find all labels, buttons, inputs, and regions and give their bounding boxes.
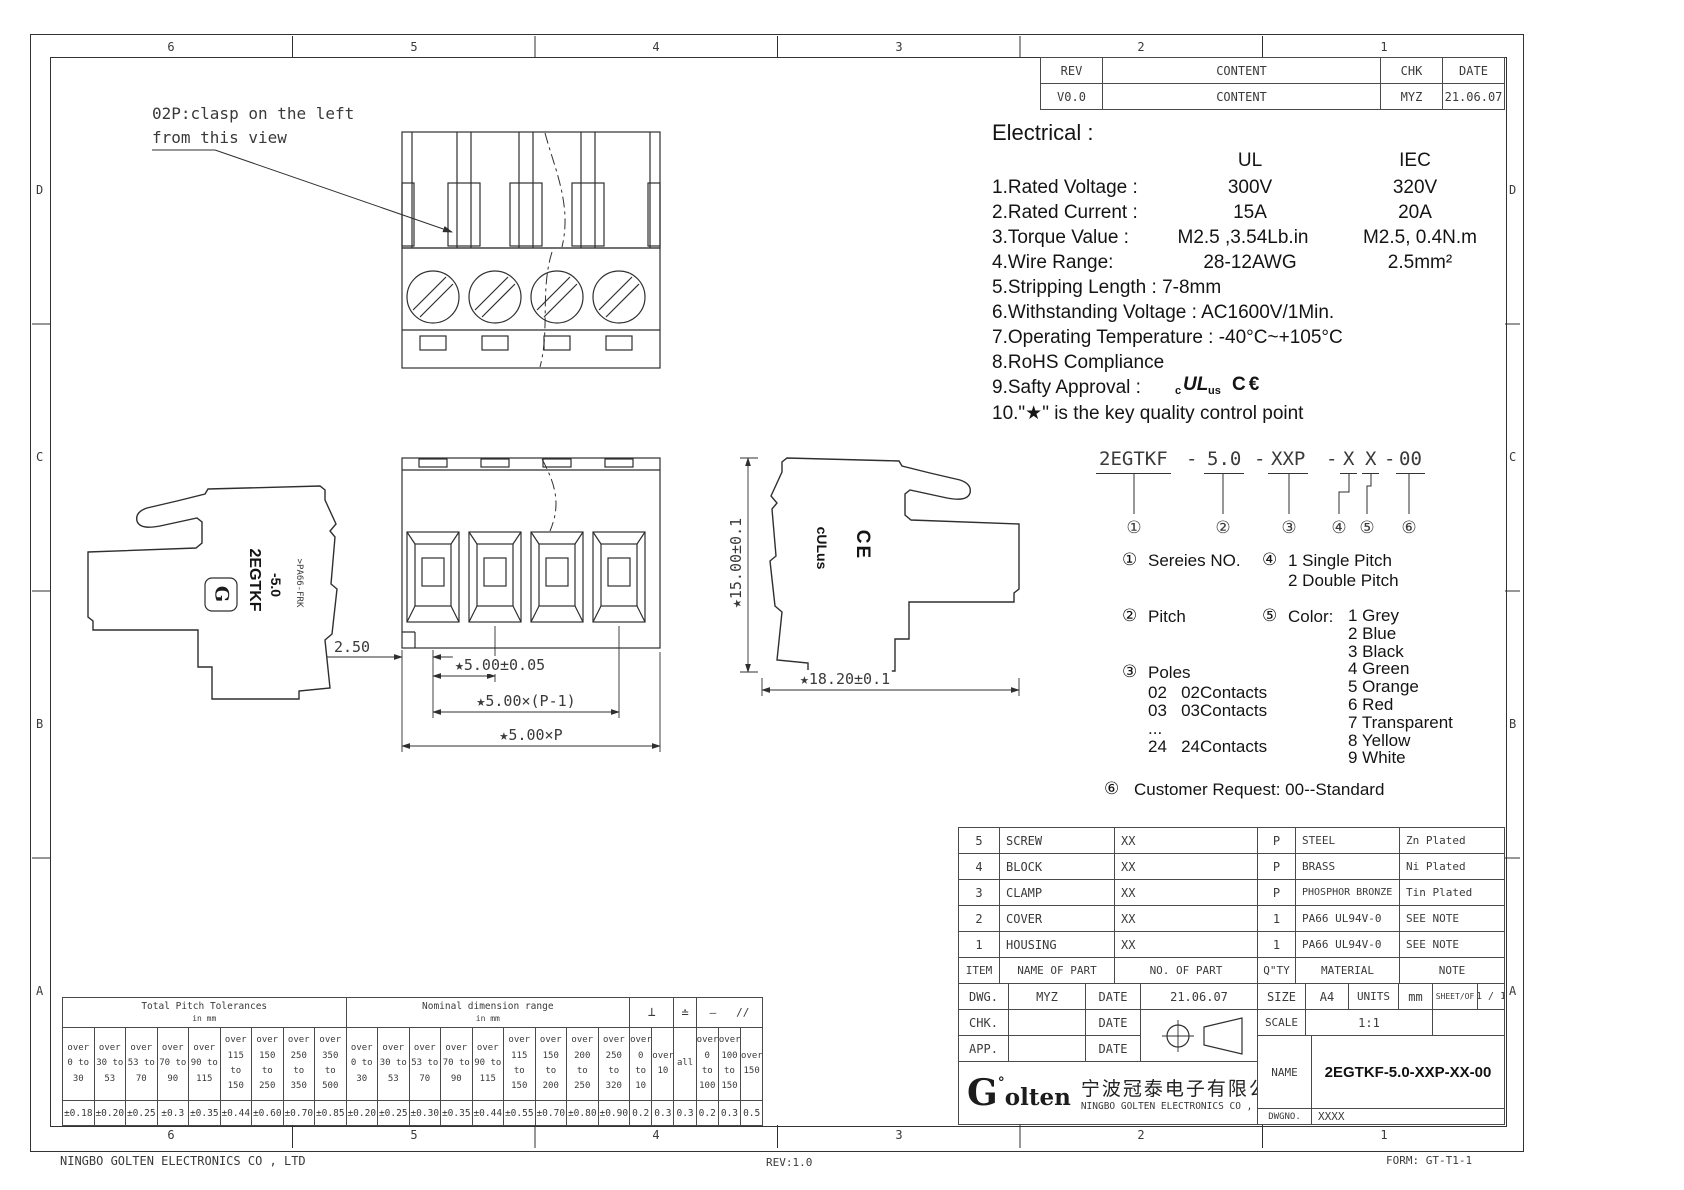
molded-logo-mark: G	[212, 586, 231, 602]
dim-pitch-label: ★5.00±0.05	[453, 656, 547, 674]
clasp-note-line1: 02P:clasp on the left	[152, 104, 354, 123]
clasp-note-line2: from this view	[152, 128, 287, 147]
dim-depth-label: ★18.20±0.1	[798, 670, 892, 688]
ul-molded-mark: cULus	[814, 527, 830, 570]
dim-pitch-total-label: ★5.00×P	[499, 726, 562, 744]
material-marking: >PA66-FRK	[294, 559, 304, 608]
dim-step-label: 2.50	[334, 638, 370, 656]
ce-molded-mark: CE	[851, 530, 873, 560]
part-marking-pitch: -5.0	[268, 573, 284, 597]
dim-pitch-pm1-label: ★5.00×(P-1)	[476, 692, 575, 710]
engineering-drawing-sheet: 6 5 4 3 2 1 6 5 4 3 2 1 D C B A D C B A …	[0, 0, 1684, 1190]
dim-height-label: ★15.00±0.1	[727, 518, 745, 608]
part-marking-series: 2EGTKF	[245, 548, 263, 611]
